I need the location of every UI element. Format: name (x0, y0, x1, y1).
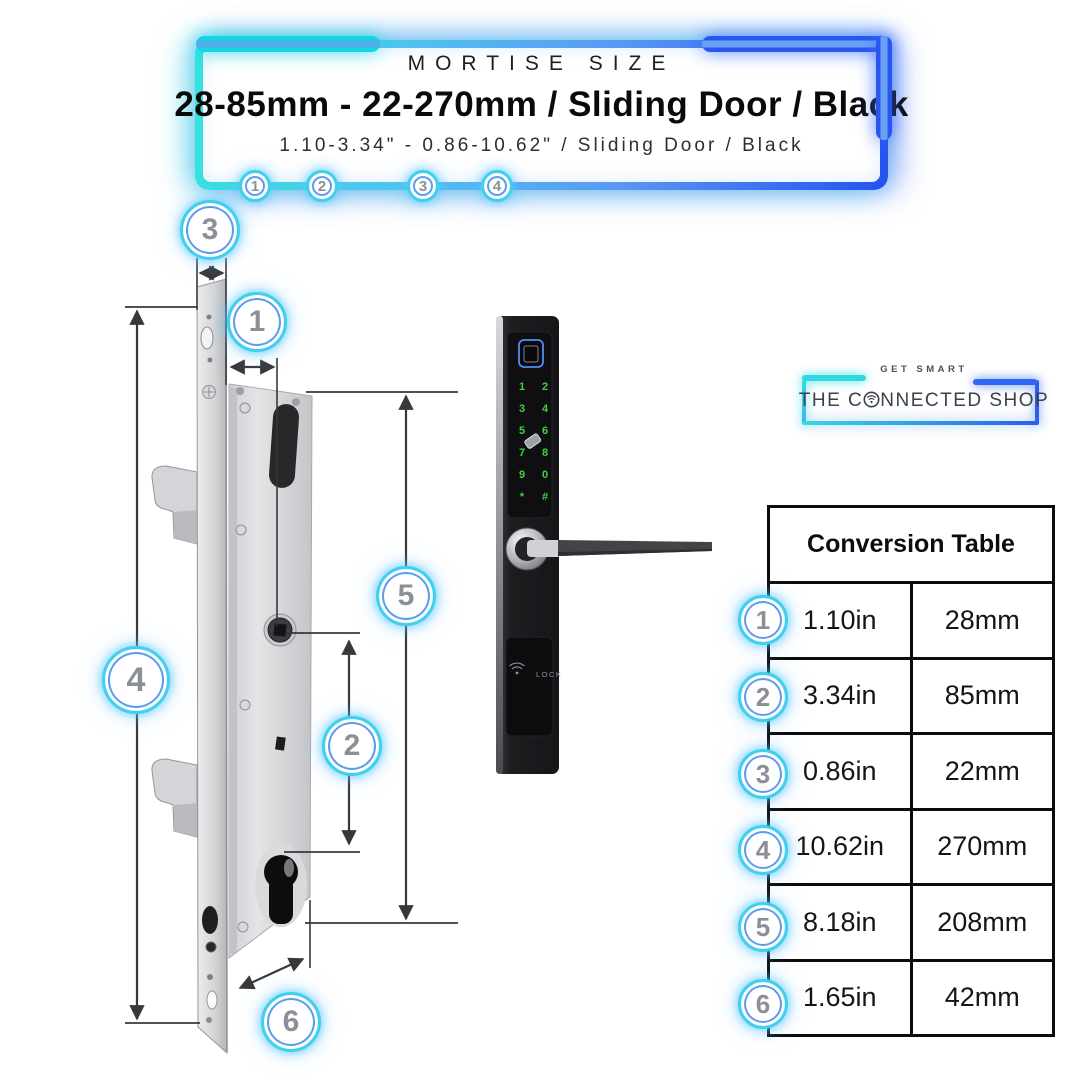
banner-callout-3: 3 (407, 170, 439, 202)
table-callout-3: 3 (738, 749, 788, 799)
cell-mm: 208mm (911, 885, 1054, 961)
callout-number: 2 (344, 729, 361, 763)
table-callout-5: 5 (738, 902, 788, 952)
lock-metal-edge (496, 316, 503, 774)
callout-number: 4 (493, 178, 501, 195)
key-hash[interactable]: # (542, 491, 548, 503)
table-callout-1: 1 (738, 595, 788, 645)
logo-accent-left (802, 375, 866, 381)
screw-hole (208, 358, 213, 363)
table-header-row: Conversion Table (769, 507, 1054, 583)
latch-hole (275, 737, 286, 751)
smart-lock-product: 1 2 3 4 5 6 7 8 9 0 * # LOCK (470, 300, 720, 790)
screw-hole (206, 942, 216, 952)
table-callout-2: 2 (738, 672, 788, 722)
body-edge-shade (229, 388, 237, 954)
logo-brand-text: THE CNNECTED SHOP (795, 390, 1053, 412)
table-row: 1.10in 28mm (769, 583, 1054, 659)
brand-text-end: NNECTED SHOP (880, 390, 1049, 411)
table-row: 3.34in 85mm (769, 658, 1054, 734)
callout-number: 2 (756, 682, 770, 713)
diagram-callout-2: 2 (322, 716, 382, 776)
callout-number: 5 (756, 912, 770, 943)
table-row: 8.18in 208mm (769, 885, 1054, 961)
banner-callout-4: 4 (481, 170, 513, 202)
banner-accent-bar-right (702, 36, 892, 52)
dark-oval-hole (202, 906, 218, 934)
lock-panel-label: LOCK (536, 670, 562, 679)
screw-hole (206, 1017, 212, 1023)
oval-hole (207, 991, 217, 1009)
cylinder-highlight (284, 859, 294, 877)
table-title: Conversion Table (769, 507, 1054, 583)
conversion-table: Conversion Table 1.10in 28mm 3.34in 85mm… (767, 505, 1055, 1037)
banner-callout-2: 2 (306, 170, 338, 202)
screw-hole (207, 315, 212, 320)
hook-bolt-lower (152, 759, 197, 837)
product-infographic: MORTISE SIZE 28-85mm - 22-270mm / Slidin… (0, 0, 1080, 1080)
body-screw (240, 403, 250, 413)
oval-hole (201, 327, 213, 349)
cell-inches: 1.65in (769, 960, 912, 1036)
banner-accent-bar-left (196, 36, 380, 52)
key-2[interactable]: 2 (542, 381, 548, 393)
callout-number: 4 (756, 835, 770, 866)
logo-frame-bottom (802, 421, 1039, 425)
cell-mm: 42mm (911, 960, 1054, 1036)
diagram-callout-6: 6 (261, 992, 321, 1052)
body-screw (236, 525, 246, 535)
key-5[interactable]: 5 (519, 425, 525, 437)
callout-number: 1 (756, 605, 770, 636)
body-screw (238, 922, 248, 932)
key-8[interactable]: 8 (542, 447, 548, 459)
callout-number: 6 (283, 1005, 300, 1039)
key-7[interactable]: 7 (519, 447, 525, 459)
body-screw (240, 700, 250, 710)
key-6[interactable]: 6 (542, 425, 548, 437)
diagram-callout-3: 3 (180, 200, 240, 260)
table-row: 10.62in 270mm (769, 809, 1054, 885)
diagram-callout-5: 5 (376, 566, 436, 626)
cell-mm: 270mm (911, 809, 1054, 885)
key-3[interactable]: 3 (519, 403, 525, 415)
mortise-size-banner: MORTISE SIZE 28-85mm - 22-270mm / Slidin… (195, 40, 888, 190)
hook-bolt-upper (152, 466, 197, 544)
handle-neck[interactable] (527, 540, 561, 557)
cell-inches: 0.86in (769, 734, 912, 810)
callout-number: 5 (398, 579, 415, 613)
callout-number: 6 (756, 989, 770, 1020)
table-row: 1.65in 42mm (769, 960, 1054, 1036)
callout-number: 3 (202, 213, 219, 247)
callout-number: 3 (419, 178, 427, 195)
callout-number: 1 (251, 178, 259, 195)
cell-mm: 28mm (911, 583, 1054, 659)
cell-inches: 8.18in (769, 885, 912, 961)
cell-inches: 3.34in (769, 658, 912, 734)
key-star[interactable]: * (520, 491, 525, 503)
key-4[interactable]: 4 (542, 403, 549, 415)
callout-number: 1 (249, 305, 266, 339)
logo-tagline: GET SMART (795, 364, 1053, 375)
spindle-square (273, 623, 286, 636)
key-9[interactable]: 9 (519, 469, 525, 481)
screw-hole (207, 974, 213, 980)
banner-inner: MORTISE SIZE 28-85mm - 22-270mm / Slidin… (203, 48, 880, 182)
cell-inches: 1.10in (769, 583, 912, 659)
table-callout-6: 6 (738, 979, 788, 1029)
cell-mm: 85mm (911, 658, 1054, 734)
wifi-circle-icon (863, 391, 880, 408)
key-0[interactable]: 0 (542, 469, 548, 481)
body-hole (292, 398, 300, 406)
euro-cylinder-stem (269, 876, 293, 924)
brand-text-start: THE C (799, 390, 864, 411)
diagram-callout-1: 1 (227, 292, 287, 352)
banner-title: MORTISE SIZE (408, 52, 676, 76)
lock-bottom-panel (506, 637, 553, 736)
callout-number: 3 (756, 759, 770, 790)
table-row: 0.86in 22mm (769, 734, 1054, 810)
callout-number: 4 (127, 661, 146, 700)
banner-heading-metric: 28-85mm - 22-270mm / Sliding Door / Blac… (174, 85, 908, 125)
cell-mm: 22mm (911, 734, 1054, 810)
key-1[interactable]: 1 (519, 381, 525, 393)
body-hole (236, 387, 244, 395)
callout-number: 2 (318, 178, 326, 195)
fingerprint-sensor[interactable] (519, 340, 543, 367)
banner-subtitle-imperial: 1.10-3.34" - 0.86-10.62" / Sliding Door … (279, 135, 803, 157)
banner-callout-1: 1 (239, 170, 271, 202)
faceplate-edge (226, 280, 227, 1052)
banner-accent-bar-right-vertical (876, 36, 892, 140)
table-callout-4: 4 (738, 825, 788, 875)
diagram-callout-4: 4 (102, 646, 170, 714)
cell-inches: 10.62in (769, 809, 912, 885)
logo-accent-right (973, 379, 1037, 385)
connected-shop-logo: GET SMART THE CNNECTED SHOP (795, 358, 1053, 438)
